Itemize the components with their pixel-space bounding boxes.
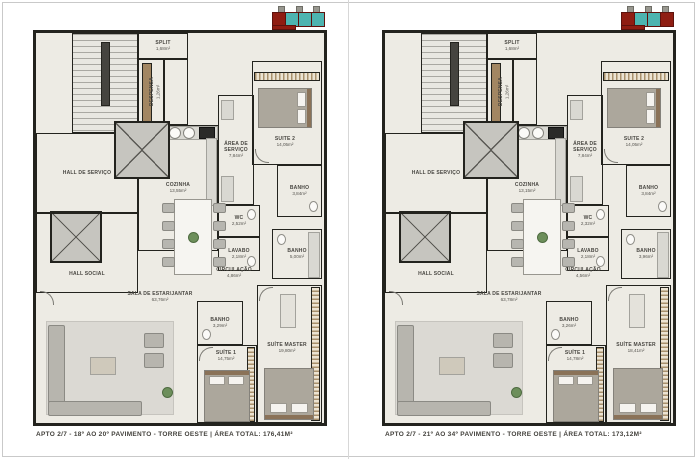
service-bench — [221, 176, 234, 202]
apartment-panel-right: SPLIT 1,68m² DESPENSA 1,26m² COZ — [349, 0, 697, 459]
headboard — [265, 415, 313, 419]
keyplan-unit — [311, 12, 325, 27]
service-bench — [570, 176, 583, 202]
room-entry — [164, 59, 188, 125]
room-suite2: SUITE 2 14,05m² — [252, 61, 322, 165]
room-label-wc: WC 2,52m² — [232, 215, 246, 227]
bed — [258, 88, 312, 128]
room-label-wc: WC 2,32m² — [581, 215, 595, 227]
sofa — [48, 325, 65, 403]
floorplan-sheet: SPLIT 1,68m² DESPENSA 1,26m² COZ — [0, 0, 697, 459]
room-banho-suite1: BANHO 3,29m² — [197, 301, 243, 345]
room-label-suite-master: SUÍTE MASTER 18,41m² — [607, 342, 665, 354]
room-label-suite2: SUITE 2 14,05m² — [604, 136, 664, 148]
armchair — [144, 333, 164, 348]
headboard — [307, 89, 311, 127]
service-bench — [570, 100, 583, 120]
pillow — [291, 403, 308, 413]
toilet-icon — [247, 209, 256, 220]
headboard — [614, 415, 662, 419]
dining-chair — [213, 221, 226, 231]
dining-chair — [511, 203, 524, 213]
sofa — [397, 325, 414, 403]
floor-plan: SPLIT 1,68m² DESPENSA 1,26m² COZ — [33, 30, 327, 426]
bench — [280, 294, 296, 328]
room-staircase — [72, 33, 138, 133]
sofa — [48, 401, 142, 416]
room-label-banho-suite2: BANHO 3,84m² — [290, 185, 309, 197]
pillow — [619, 403, 636, 413]
room-label-suite-master: SUÍTE MASTER 19,80m² — [258, 342, 316, 354]
room-suite-master: SUÍTE MASTER 18,41m² — [606, 285, 671, 423]
room-label-cozinha: COZINHA 13,15m² — [515, 182, 539, 194]
dining-chair — [562, 203, 575, 213]
room-area-servico: ÁREA DE SERVIÇO 7,84m² — [567, 95, 603, 205]
tower-position-keyplan-icon — [272, 6, 325, 29]
room-entry — [513, 59, 537, 125]
wardrobe — [603, 72, 669, 81]
bathtub — [308, 232, 320, 278]
toilet-icon — [247, 256, 256, 267]
coffee-table — [90, 357, 116, 375]
dining-chair — [562, 239, 575, 249]
keyplan-unit — [647, 12, 661, 27]
dining-chair — [562, 257, 575, 267]
room-split: SPLIT 1,68m² — [138, 33, 188, 59]
room-suite1: SUÍTE 1 14,75m² — [197, 345, 257, 423]
room-label-split: SPLIT 1,68m² — [504, 40, 519, 52]
room-banho-social: BANHO 3,96m² — [621, 229, 671, 279]
pillow — [577, 376, 593, 385]
room-despensa: DESPENSA 1,26m² — [487, 59, 513, 125]
pillow — [646, 92, 655, 107]
door-arc — [199, 347, 213, 361]
wardrobe — [254, 72, 320, 81]
armchair — [144, 353, 164, 368]
elevator-shaft — [114, 121, 170, 179]
dining-chair — [562, 221, 575, 231]
keyplan-unit — [660, 12, 674, 27]
dining-chair — [213, 203, 226, 213]
pillow — [270, 403, 287, 413]
dining-chair — [162, 203, 175, 213]
headboard — [656, 89, 660, 127]
plant-icon — [537, 232, 548, 243]
room-banho-suite1: BANHO 3,26m² — [546, 301, 592, 345]
bed — [607, 88, 661, 128]
door-arc — [608, 287, 622, 301]
room-label-split: SPLIT 1,68m² — [155, 40, 170, 52]
toilet-icon — [596, 256, 605, 267]
room-suite2: SUITE 2 14,05m² — [601, 61, 671, 165]
apartment-panel-left: SPLIT 1,68m² DESPENSA 1,26m² COZ — [0, 0, 348, 459]
door-arc — [255, 149, 269, 163]
elevator-shaft — [463, 121, 519, 179]
toilet-icon — [626, 234, 635, 245]
plan-caption: APTO 2/7 - 18º AO 20º PAVIMENTO - TORRE … — [36, 431, 293, 438]
armchair — [493, 353, 513, 368]
door-arc — [259, 287, 273, 301]
room-suite1: SUÍTE 1 14,78m² — [546, 345, 606, 423]
toilet-icon — [596, 209, 605, 220]
washer-icon — [532, 127, 544, 139]
pillow — [640, 403, 657, 413]
stair-rail — [101, 42, 110, 106]
dining-chair — [511, 257, 524, 267]
pillow — [209, 376, 225, 385]
floor-plan: SPLIT 1,68m² DESPENSA 1,26m² COZ — [382, 30, 676, 426]
room-label-banho-social: BANHO 3,96m² — [636, 248, 655, 260]
room-banho-suite2: BANHO 3,84m² — [277, 165, 322, 217]
room-label-area-servico: ÁREA DE SERVIÇO 7,84m² — [221, 141, 251, 159]
toilet-icon — [309, 201, 318, 212]
room-staircase — [421, 33, 487, 133]
toilet-icon — [551, 329, 560, 340]
pillow — [646, 109, 655, 124]
toilet-icon — [658, 201, 667, 212]
pantry-shelf — [491, 63, 501, 123]
room-label-banho-suite2: BANHO 3,84m² — [639, 185, 658, 197]
room-suite-master: SUÍTE MASTER 19,80m² — [257, 285, 322, 423]
room-hall-social — [385, 213, 487, 293]
keyplan-unit — [298, 12, 312, 27]
toilet-icon — [202, 329, 211, 340]
kitchen-counter — [555, 138, 566, 206]
room-label-banho-suite1: BANHO 3,26m² — [559, 317, 578, 329]
room-label-banho-social: BANHO 5,00m² — [287, 248, 306, 260]
room-banho-suite2: BANHO 3,84m² — [626, 165, 671, 217]
kitchen-counter — [206, 138, 217, 206]
plant-icon — [511, 387, 522, 398]
room-area-servico: ÁREA DE SERVIÇO 7,84m² — [218, 95, 254, 205]
room-despensa: DESPENSA 1,26m² — [138, 59, 164, 125]
pantry-shelf — [142, 63, 152, 123]
pillow — [297, 92, 306, 107]
toilet-icon — [277, 234, 286, 245]
door-arc — [389, 291, 403, 305]
room-label-hall-servico: HALL DE SERVIÇO — [412, 170, 460, 176]
pillow — [228, 376, 244, 385]
bed — [613, 368, 663, 420]
armchair — [493, 333, 513, 348]
room-label-suite2: SUITE 2 14,05m² — [255, 136, 315, 148]
stair-rail — [450, 42, 459, 106]
bench — [629, 294, 645, 328]
headboard — [205, 371, 249, 375]
room-label-cozinha: COZINHA 13,55m² — [166, 182, 190, 194]
washer-icon — [169, 127, 181, 139]
door-arc — [604, 149, 618, 163]
plant-icon — [162, 387, 173, 398]
dining-chair — [511, 221, 524, 231]
dining-chair — [162, 221, 175, 231]
dining-chair — [213, 239, 226, 249]
washer-icon — [518, 127, 530, 139]
room-split: SPLIT 1,68m² — [487, 33, 537, 59]
tower-position-keyplan-icon — [621, 6, 674, 29]
room-hall-social — [36, 213, 138, 293]
dining-chair — [511, 239, 524, 249]
washer-icon — [183, 127, 195, 139]
bed — [553, 370, 599, 422]
door-arc — [548, 347, 562, 361]
door-arc — [40, 291, 54, 305]
pillow — [558, 376, 574, 385]
dining-chair — [162, 257, 175, 267]
coffee-table — [439, 357, 465, 375]
bathtub — [657, 232, 669, 278]
bed — [204, 370, 250, 422]
service-bench — [221, 100, 234, 120]
sofa — [397, 401, 491, 416]
room-banho-social: BANHO 5,00m² — [272, 229, 322, 279]
bed — [264, 368, 314, 420]
room-label-hall-servico: HALL DE SERVIÇO — [63, 170, 111, 176]
dining-chair — [213, 257, 226, 267]
room-label-area-servico: ÁREA DE SERVIÇO 7,84m² — [570, 141, 600, 159]
room-label-banho-suite1: BANHO 3,29m² — [210, 317, 229, 329]
plan-caption: APTO 2/7 - 21º AO 34º PAVIMENTO - TORRE … — [385, 431, 642, 438]
headboard — [554, 371, 598, 375]
pillow — [297, 109, 306, 124]
plant-icon — [188, 232, 199, 243]
dining-chair — [162, 239, 175, 249]
